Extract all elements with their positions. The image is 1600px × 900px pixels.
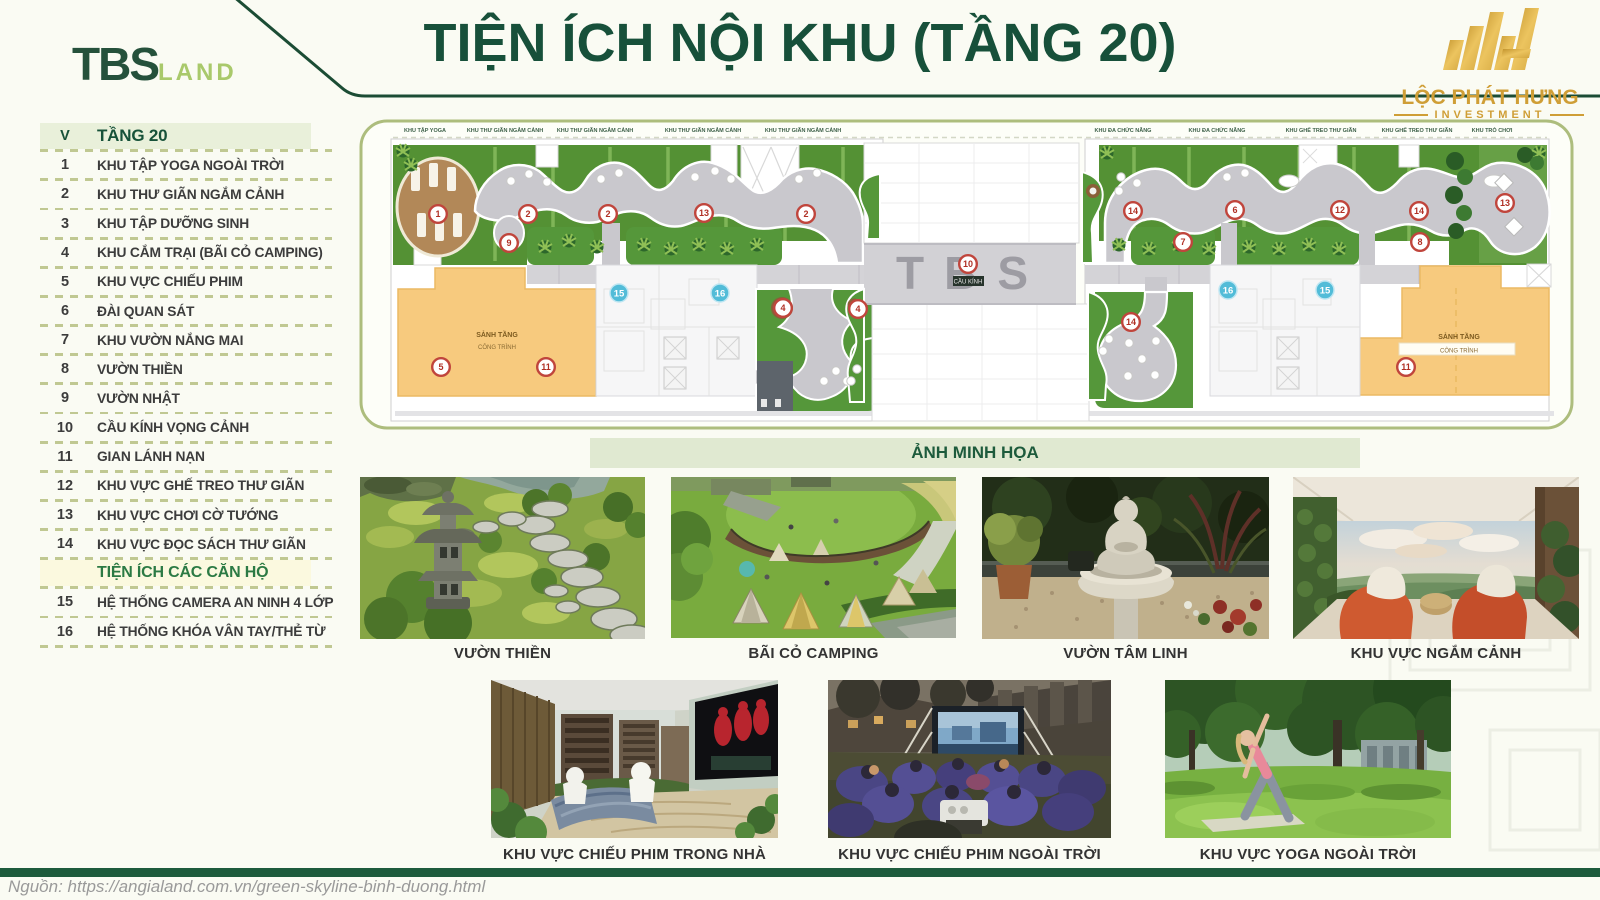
- svg-text:13: 13: [699, 208, 709, 218]
- svg-text:5: 5: [438, 362, 443, 372]
- svg-text:10: 10: [963, 259, 973, 269]
- svg-text:14: 14: [1414, 206, 1424, 216]
- svg-text:4: 4: [855, 304, 860, 314]
- svg-text:KHU GHẾ TREO THƯ GIÃN: KHU GHẾ TREO THƯ GIÃN: [1382, 127, 1453, 134]
- svg-text:KHU TRÒ CHƠI: KHU TRÒ CHƠI: [1472, 126, 1513, 134]
- svg-text:15: 15: [1320, 285, 1331, 296]
- svg-text:KHU THƯ GIÃN NGẮM CẢNH: KHU THƯ GIÃN NGẮM CẢNH: [467, 126, 543, 134]
- svg-text:8: 8: [1417, 237, 1422, 247]
- svg-text:16: 16: [715, 288, 726, 299]
- svg-text:KHU ĐA CHỨC NĂNG: KHU ĐA CHỨC NĂNG: [1189, 127, 1246, 134]
- svg-text:CÔNG TRÌNH: CÔNG TRÌNH: [1440, 348, 1478, 355]
- svg-text:KHU ĐA CHỨC NĂNG: KHU ĐA CHỨC NĂNG: [1095, 127, 1152, 134]
- svg-text:CÔNG TRÌNH: CÔNG TRÌNH: [478, 344, 516, 351]
- svg-text:4: 4: [780, 303, 785, 313]
- svg-text:14: 14: [1128, 206, 1138, 216]
- svg-text:2: 2: [525, 209, 530, 219]
- svg-text:9: 9: [506, 238, 511, 248]
- svg-text:2: 2: [605, 209, 610, 219]
- svg-text:KHU THƯ GIÃN NGẮM CẢNH: KHU THƯ GIÃN NGẮM CẢNH: [557, 126, 633, 134]
- svg-text:12: 12: [1335, 205, 1345, 215]
- svg-text:7: 7: [1180, 237, 1185, 247]
- svg-text:6: 6: [1232, 205, 1237, 215]
- svg-text:11: 11: [1401, 362, 1411, 372]
- svg-text:KHU THƯ GIÃN NGẮM CẢNH: KHU THƯ GIÃN NGẮM CẢNH: [665, 126, 741, 134]
- svg-text:KHU GHẾ TREO THƯ GIÃN: KHU GHẾ TREO THƯ GIÃN: [1286, 127, 1357, 134]
- svg-text:2: 2: [803, 209, 808, 219]
- svg-text:16: 16: [1223, 285, 1234, 296]
- svg-text:14: 14: [1126, 317, 1136, 327]
- svg-text:CẦU KÍNH: CẦU KÍNH: [954, 279, 983, 286]
- svg-text:15: 15: [614, 288, 625, 299]
- svg-text:KHU THƯ GIÃN NGẮM CẢNH: KHU THƯ GIÃN NGẮM CẢNH: [765, 126, 841, 134]
- svg-text:KHU TẬP YOGA: KHU TẬP YOGA: [404, 127, 446, 134]
- svg-text:13: 13: [1500, 198, 1510, 208]
- svg-text:11: 11: [541, 362, 551, 372]
- svg-text:1: 1: [435, 209, 440, 219]
